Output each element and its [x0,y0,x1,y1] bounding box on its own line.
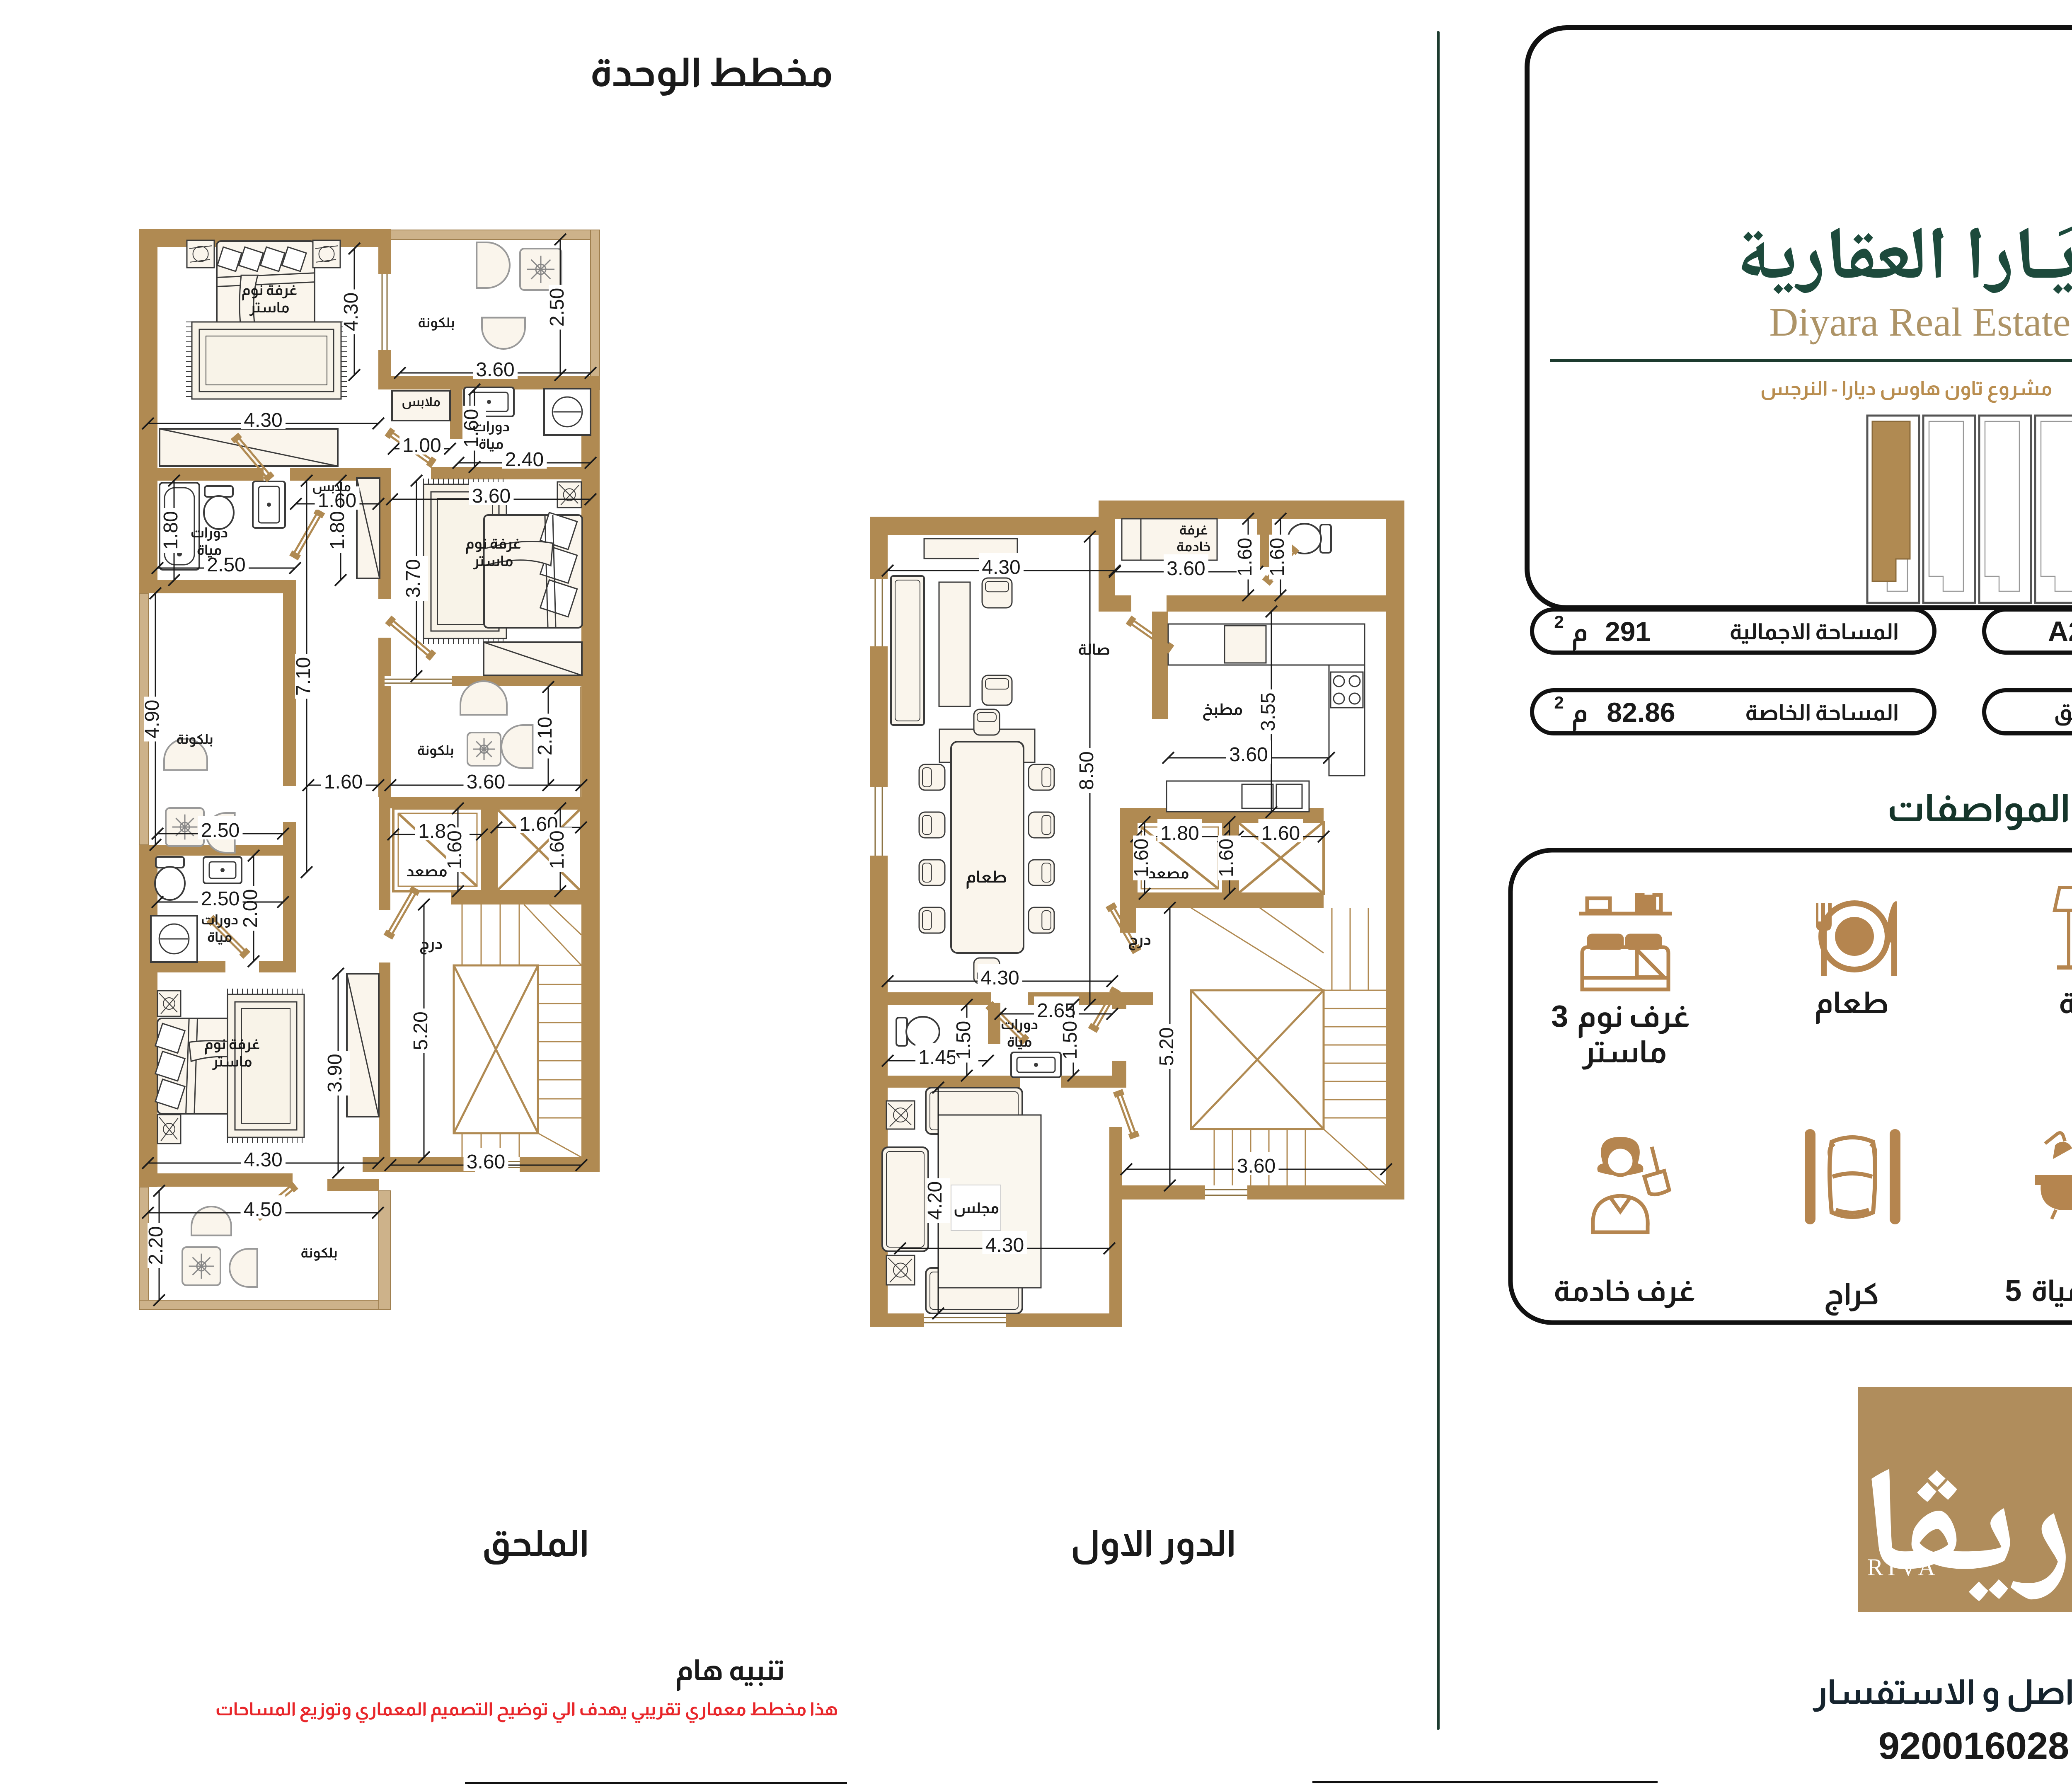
svg-text:3.60: 3.60 [472,485,511,507]
svg-text:5.20: 5.20 [410,1011,432,1050]
svg-text:4.90: 4.90 [141,700,163,738]
svg-text:8.50: 8.50 [1076,751,1098,790]
svg-text:2.20: 2.20 [145,1226,167,1265]
svg-text:5: 5 [2005,1274,2021,1308]
svg-text:2.50: 2.50 [201,888,240,910]
svg-text:2.00: 2.00 [240,889,261,928]
svg-text:1.80: 1.80 [1160,822,1199,844]
svg-text:2.40: 2.40 [505,449,544,471]
svg-text:4.30: 4.30 [982,556,1020,578]
svg-text:2.50: 2.50 [201,820,240,842]
svg-text:2: 2 [1554,693,1564,712]
svg-text:7.10: 7.10 [293,657,315,696]
svg-text:291: 291 [1605,616,1651,647]
svg-text:RIVA: RIVA [1867,1554,1939,1581]
svg-text:1.60: 1.60 [546,830,568,869]
svg-text:3.60: 3.60 [467,771,505,793]
svg-text:1.60: 1.60 [460,409,482,447]
svg-text:2.10: 2.10 [534,717,556,755]
svg-text:1.00: 1.00 [402,435,441,457]
svg-text:3.70: 3.70 [402,559,424,597]
svg-text:3.60: 3.60 [1167,558,1205,580]
svg-text:1.50: 1.50 [1059,1021,1081,1059]
svg-text:82.86: 82.86 [1607,697,1675,728]
svg-text:3.60: 3.60 [1237,1155,1276,1177]
svg-text:5.20: 5.20 [1156,1027,1178,1066]
svg-text:1.50: 1.50 [953,1021,975,1059]
svg-text:1.60: 1.60 [1266,538,1288,576]
svg-text:2.50: 2.50 [207,554,245,576]
svg-text:3.60: 3.60 [1229,744,1268,766]
svg-text:1.60: 1.60 [1261,822,1300,844]
svg-text:3.60: 3.60 [467,1151,505,1173]
svg-text:4.20: 4.20 [924,1181,946,1220]
svg-text:1.60: 1.60 [1234,538,1256,576]
svg-text:1.80: 1.80 [327,511,349,549]
svg-text:1.60: 1.60 [1130,839,1152,877]
svg-text:2: 2 [1554,612,1564,631]
svg-text:920016028: 920016028 [1878,1725,2070,1767]
svg-text:4.30: 4.30 [980,967,1019,989]
svg-text:1.45: 1.45 [918,1047,957,1069]
svg-text:2.50: 2.50 [546,288,568,326]
svg-text:1.80: 1.80 [160,511,182,549]
svg-text:4.30: 4.30 [985,1234,1024,1256]
svg-text:3.60: 3.60 [476,359,514,381]
svg-text:4.30: 4.30 [244,1149,282,1171]
svg-text:A2: A2 [2048,616,2072,647]
svg-text:Diyara Real Estate: Diyara Real Estate [1769,300,2070,344]
svg-text:3.55: 3.55 [1257,692,1279,731]
svg-text:3.90: 3.90 [324,1054,346,1092]
svg-text:3: 3 [1551,999,1568,1033]
svg-text:4.30: 4.30 [244,409,282,431]
svg-text:4.50: 4.50 [244,1199,282,1221]
svg-text:1.60: 1.60 [444,830,466,869]
svg-text:4.30: 4.30 [340,293,362,331]
svg-text:1.60: 1.60 [1215,839,1237,877]
svg-text:1.60: 1.60 [324,771,363,793]
